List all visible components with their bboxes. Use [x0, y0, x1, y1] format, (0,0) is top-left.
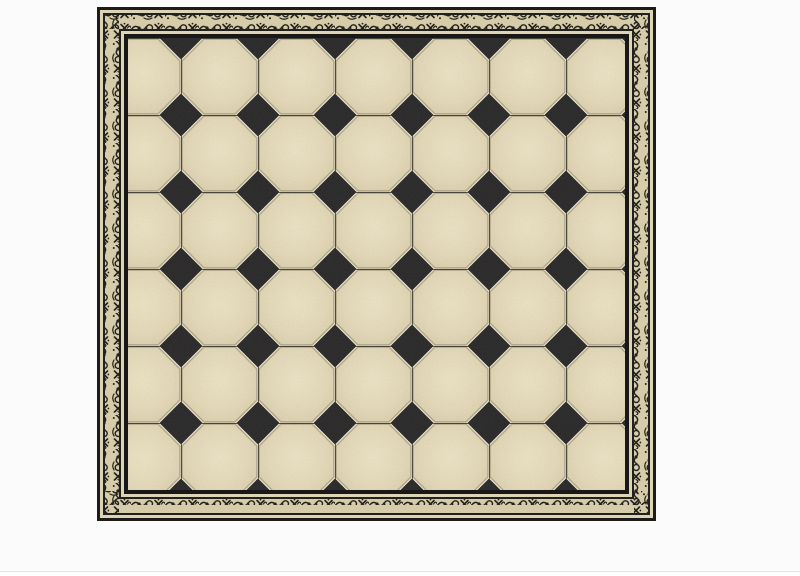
ornate-strip-left [105, 15, 119, 513]
framed-tile-artwork [97, 7, 656, 521]
canvas-bottom-margin [0, 572, 800, 576]
tile-grain-texture [128, 38, 625, 490]
ornate-strip-right [634, 15, 648, 513]
tile-field [128, 38, 625, 490]
canvas-background [0, 0, 800, 576]
ornate-strip-top [105, 15, 648, 29]
tile-artwork-svg [97, 7, 656, 521]
